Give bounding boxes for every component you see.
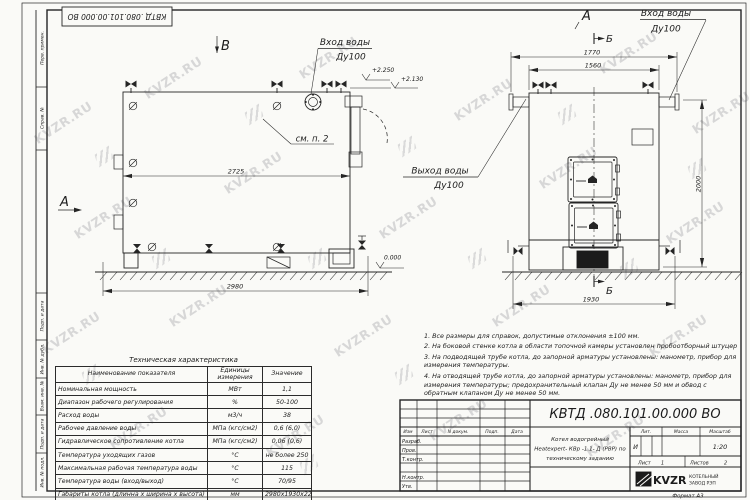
col-list: Лист: [420, 429, 433, 435]
margin-label: Подп. и дата: [40, 300, 46, 331]
param-units: мм: [208, 488, 263, 500]
param-value: 70/95: [263, 475, 312, 488]
part-name-line3: техническому заданию: [546, 456, 614, 462]
section-b-top: Б: [594, 33, 613, 45]
sheets-label: Листов: [689, 461, 709, 467]
tech-table-title: Техническая характеристика: [55, 356, 312, 366]
inlet-label-line1: Вход воды: [641, 9, 691, 19]
dim-text: 1770: [584, 49, 601, 57]
side-view: [95, 81, 392, 281]
table-row: Температура уходящих газов °С не более 2…: [56, 448, 312, 461]
section-b-bottom: Б: [594, 276, 613, 297]
designation: КВТД .080.101.00.000 ВО: [549, 407, 720, 422]
margin-label: Инв. № подл.: [40, 456, 46, 487]
param-units: МВт: [208, 383, 263, 396]
param-name: Максимальная рабочая температура воды: [56, 462, 208, 475]
dim-text: 1560: [585, 62, 602, 70]
margin-label: Инв. № дубл.: [40, 344, 46, 375]
top-stamp-text: КВТД .080.101.00.000 ВО: [68, 12, 167, 21]
inlet-flange: [305, 94, 321, 110]
param-units: °С: [208, 475, 263, 488]
row-prov: Пров.: [402, 448, 417, 454]
view-a-letter: А: [581, 9, 591, 24]
sheet-label: Лист: [637, 461, 652, 467]
side-dim-2980: 2980: [103, 256, 368, 296]
inlet-label-line2: Ду100: [335, 53, 366, 63]
param-value: 115: [263, 462, 312, 475]
param-name: Рабочее давление воды: [56, 422, 208, 435]
note-1: 1. Все размеры для справок, допустимые о…: [424, 332, 738, 341]
table-row: Температура воды (вход/выход) °С 70/95: [56, 475, 312, 488]
param-name: Температура уходящих газов: [56, 448, 208, 461]
margin-label: Перв. примен.: [40, 31, 46, 65]
tech-table-grid: Наименование показателя Единицы измерени…: [55, 366, 312, 500]
drawing-sheet: KVZR.RU KVZR.RU KVZR.RU KVZR.RU KVZR.RU …: [0, 0, 750, 500]
col-izm: Изм: [403, 429, 413, 435]
front-view: [502, 82, 742, 281]
margin-label: Справ. №: [40, 107, 46, 129]
inlet-label-line1: Вход воды: [320, 38, 370, 48]
outlet-label-line2: Ду100: [433, 181, 464, 191]
outlet-label-line1: Выход воды: [411, 167, 468, 177]
part-name-line1: Котел водогрейный: [551, 437, 609, 443]
param-units: °С: [208, 462, 263, 475]
front-outlet-label: Выход воды Ду100: [403, 99, 526, 191]
param-units: МПа (кгс/см2): [208, 422, 263, 435]
lit-label: Лит.: [640, 429, 651, 435]
dim-text: 2000: [695, 176, 703, 193]
param-value: 38: [263, 409, 312, 422]
company-line2: ЗАВОД РЭП: [689, 481, 716, 487]
param-name: Диапазон рабочего регулирования: [56, 396, 208, 409]
row-tkontr: Т.контр.: [402, 457, 424, 463]
col-podp: Подп.: [485, 429, 499, 435]
param-value: 2980х1930х2250: [263, 488, 312, 500]
param-units: °С: [208, 448, 263, 461]
table-row: Рабочее давление воды МПа (кгс/см2) 0,6 …: [56, 422, 312, 435]
tech-table: Техническая характеристика Наименование …: [55, 356, 312, 500]
elev-2130: +2.130: [401, 76, 423, 83]
table-row: Расход воды м3/ч 38: [56, 409, 312, 422]
sheet-value: 1: [661, 461, 664, 467]
param-name: Номинальная мощность: [56, 383, 208, 396]
table-row: Гидравлическое сопротивление котла МПа (…: [56, 435, 312, 448]
margin-label: Взам. инв. №: [40, 380, 46, 411]
lit-value: И: [633, 443, 638, 451]
param-value: 50-100: [263, 396, 312, 409]
elev-2250: +2.250: [372, 67, 394, 74]
kvzr-logo: KVZR: [636, 472, 687, 487]
row-utv: Утв.: [402, 484, 413, 490]
param-units: м3/ч: [208, 409, 263, 422]
param-value: 1,1: [263, 383, 312, 396]
part-name-line2: Heatexpert- КВр -1.1- Д (РВР) по: [534, 447, 626, 453]
section-letter: Б: [606, 34, 613, 45]
top-stamp: КВТД .080.101.00.000 ВО: [62, 7, 172, 26]
table-row: Габариты котла (длинна х ширина х высота…: [56, 488, 312, 500]
view-a-mark-left: А: [58, 195, 82, 212]
title-block: КВТД .080.101.00.000 ВО Котел водогрейны…: [400, 400, 741, 500]
param-value: 0,6 (6,0): [263, 422, 312, 435]
front-inlet-label: Вход воды Ду100: [640, 9, 706, 100]
see-note-text: см. п. 2: [296, 135, 329, 145]
format-label: Формат А3: [672, 494, 704, 500]
view-b-letter: В: [221, 39, 230, 54]
param-name: Расход воды: [56, 409, 208, 422]
col-doc: N докум.: [448, 429, 469, 435]
view-a-letter: А: [59, 195, 69, 210]
param-value: 0,06 (0,6): [263, 435, 312, 448]
dim-text: 1930: [583, 296, 600, 304]
view-b-mark: В: [215, 36, 230, 54]
note-2: 2. На боковой стенке котла в области топ…: [424, 342, 738, 351]
lower-door: [569, 203, 621, 248]
param-value: не более 250: [263, 448, 312, 461]
param-units: %: [208, 396, 263, 409]
param-name: Гидравлическое сопротивление котла: [56, 435, 208, 448]
front-dim-2000: 2000: [663, 100, 707, 267]
dim-text: 2980: [227, 283, 244, 291]
notes-block: 1. Все размеры для справок, допустимые о…: [424, 332, 738, 400]
company-line1: КОТЕЛЬНЫЙ: [689, 473, 719, 480]
tech-header-value: Значение: [263, 367, 312, 383]
row-nkontr: Н.контр.: [402, 475, 424, 481]
scale-label: Масштаб: [709, 429, 731, 435]
margin-labels: Перв. примен. Справ. № Подп. и дата Инв.…: [40, 31, 46, 487]
param-name: Габариты котла (длинна х ширина х высота…: [56, 488, 208, 500]
table-row: Номинальная мощность МВт 1,1: [56, 383, 312, 396]
kvzr-logo-text: KVZR: [653, 474, 687, 487]
elev-0000: 0.000: [384, 255, 401, 262]
param-name: Температура воды (вход/выход): [56, 475, 208, 488]
tech-header-name: Наименование показателя: [56, 367, 208, 383]
row-razrab: Разраб.: [402, 439, 422, 445]
col-data: Дата: [510, 429, 523, 435]
mass-label: Масса: [674, 429, 689, 435]
table-row: Диапазон рабочего регулирования % 50-100: [56, 396, 312, 409]
note-3: 3. На подводящей трубе котла, до запорно…: [424, 353, 738, 371]
side-inlet-label: Вход воды Ду100: [311, 38, 372, 94]
margin-label: Подп. и дата: [40, 418, 46, 449]
param-units: МПа (кгс/см2): [208, 435, 263, 448]
tech-header-units: Единицы измерения: [208, 367, 263, 383]
note-4: 4. На отводящей трубе котла, до запорной…: [424, 372, 738, 398]
table-row: Максимальная рабочая температура воды °С…: [56, 462, 312, 475]
dim-text: 2725: [228, 168, 245, 176]
see-note-callout: см. п. 2: [263, 119, 334, 145]
scale-value: 1:20: [713, 443, 728, 451]
inlet-label-line2: Ду100: [650, 25, 681, 35]
sheets-value: 2: [724, 461, 727, 467]
view-a-mark-top: А: [575, 9, 591, 29]
section-letter: Б: [606, 286, 613, 297]
side-dim-2725: 2725: [123, 168, 350, 179]
